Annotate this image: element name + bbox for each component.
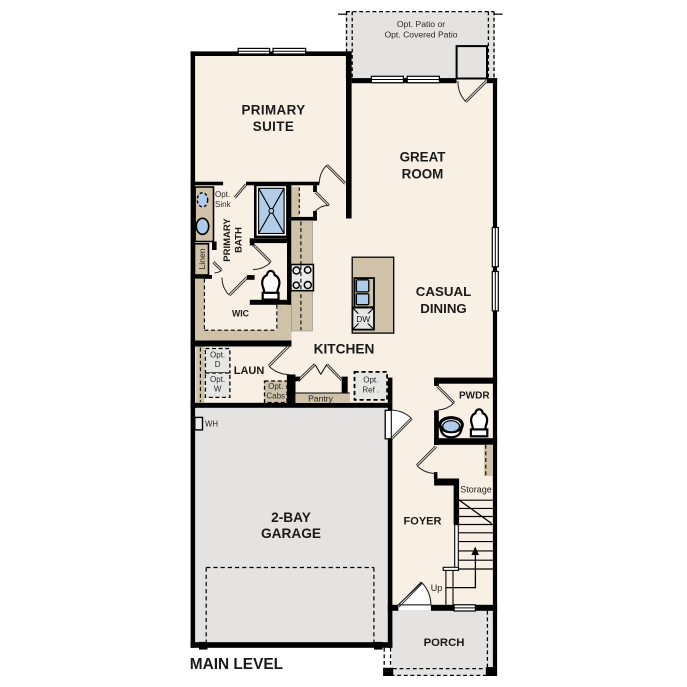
svg-text:Linen: Linen bbox=[197, 248, 207, 269]
svg-text:PRIMARY: PRIMARY bbox=[241, 103, 305, 118]
svg-text:GREAT: GREAT bbox=[400, 150, 447, 165]
svg-text:WIC: WIC bbox=[232, 309, 250, 319]
svg-text:WH: WH bbox=[205, 420, 218, 429]
svg-text:DW: DW bbox=[356, 314, 370, 324]
svg-text:D: D bbox=[215, 360, 221, 369]
svg-text:Ref .: Ref . bbox=[362, 386, 379, 395]
svg-text:2-BAY: 2-BAY bbox=[271, 510, 311, 525]
svg-text:Up: Up bbox=[431, 583, 443, 593]
svg-text:SUITE: SUITE bbox=[253, 119, 294, 134]
svg-text:PORCH: PORCH bbox=[424, 637, 465, 649]
svg-text:BATH: BATH bbox=[234, 227, 245, 253]
svg-text:Opt.: Opt. bbox=[268, 382, 283, 391]
svg-text:W: W bbox=[214, 385, 222, 394]
svg-text:KITCHEN: KITCHEN bbox=[314, 342, 375, 357]
svg-text:LAUN: LAUN bbox=[234, 365, 265, 377]
svg-text:Opt.: Opt. bbox=[210, 375, 225, 384]
svg-text:Sink: Sink bbox=[215, 200, 232, 209]
svg-text:Opt. Patio or: Opt. Patio or bbox=[397, 19, 445, 29]
svg-text:Opt.: Opt. bbox=[215, 190, 230, 199]
svg-text:MAIN LEVEL: MAIN LEVEL bbox=[190, 656, 283, 673]
svg-text:DINING: DINING bbox=[420, 301, 467, 316]
svg-text:PWDR: PWDR bbox=[459, 391, 490, 402]
svg-text:Storage: Storage bbox=[460, 485, 492, 495]
svg-text:Opt. Covered Patio: Opt. Covered Patio bbox=[384, 30, 457, 40]
svg-text:Opt.: Opt. bbox=[210, 351, 225, 360]
svg-text:GARAGE: GARAGE bbox=[261, 526, 321, 541]
svg-text:FOYER: FOYER bbox=[404, 516, 442, 528]
svg-text:Opt.: Opt. bbox=[363, 376, 378, 385]
svg-text:ROOM: ROOM bbox=[402, 167, 444, 182]
svg-text:Pantry: Pantry bbox=[308, 394, 334, 404]
svg-text:PRIMARY: PRIMARY bbox=[222, 218, 233, 262]
svg-text:CASUAL: CASUAL bbox=[416, 284, 471, 299]
svg-text:Cabs: Cabs bbox=[266, 392, 285, 401]
